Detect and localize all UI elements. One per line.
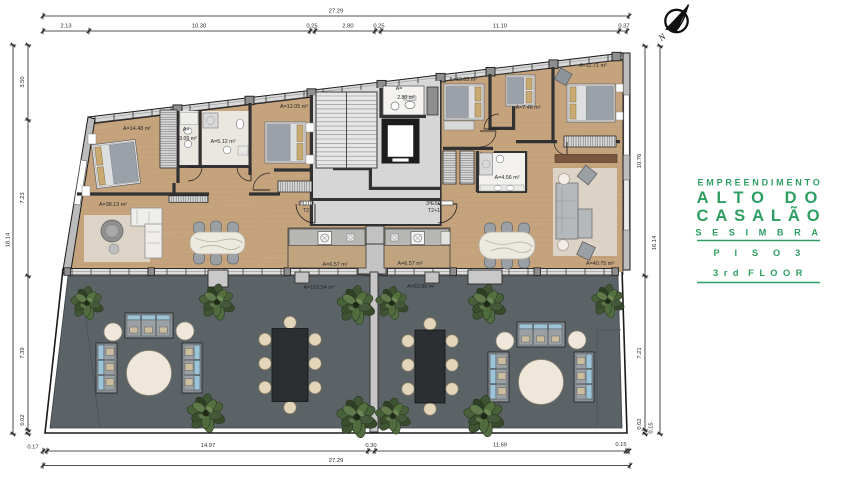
svg-text:A=82.86 m²: A=82.86 m²	[407, 284, 435, 290]
svg-text:A=4.56 m²: A=4.56 m²	[494, 175, 519, 181]
svg-text:A=40.75 m²: A=40.75 m²	[586, 261, 614, 267]
svg-text:ALTO DO: ALTO DO	[697, 189, 826, 207]
svg-text:27.29: 27.29	[329, 9, 344, 15]
svg-text:A=38.13 m²: A=38.13 m²	[99, 202, 127, 208]
svg-text:0.37: 0.37	[618, 24, 629, 30]
svg-text:7.39: 7.39	[20, 347, 26, 358]
svg-text:14.97: 14.97	[201, 443, 216, 449]
svg-text:2.80 m²: 2.80 m²	[397, 95, 415, 101]
svg-text:0.25: 0.25	[306, 24, 317, 30]
svg-text:SESIMBRA: SESIMBRA	[695, 228, 828, 238]
svg-text:0.15: 0.15	[649, 422, 655, 433]
svg-text:A=: A=	[396, 86, 403, 92]
svg-text:A=: A=	[183, 127, 190, 133]
svg-text:27.29: 27.29	[329, 458, 344, 464]
svg-text:T2+1: T2+1	[428, 208, 440, 214]
svg-text:A=14.48 m²: A=14.48 m²	[123, 126, 151, 132]
svg-text:EMPREENDIMENTO: EMPREENDIMENTO	[697, 178, 822, 188]
svg-text:16.14: 16.14	[652, 235, 658, 250]
svg-text:2.80: 2.80	[342, 24, 353, 30]
svg-text:0.15: 0.15	[615, 442, 626, 448]
svg-text:0.30: 0.30	[365, 443, 376, 449]
svg-text:A=13.65 m²: A=13.65 m²	[449, 77, 477, 83]
svg-text:P I S O 3: P I S O 3	[714, 248, 807, 258]
svg-text:0.17: 0.17	[27, 445, 38, 451]
svg-text:CASALÃO: CASALÃO	[697, 205, 827, 225]
svg-text:7.21: 7.21	[637, 347, 643, 358]
svg-text:A=12.05 m²: A=12.05 m²	[280, 104, 308, 110]
svg-text:10.30: 10.30	[192, 24, 207, 30]
svg-text:0.02: 0.02	[20, 414, 26, 425]
svg-text:A=6.57 m²: A=6.57 m²	[397, 261, 422, 267]
svg-text:A=5.12 m²: A=5.12 m²	[210, 139, 235, 145]
svg-text:A=6.57 m²: A=6.57 m²	[322, 262, 347, 268]
svg-text:3ºESQ: 3ºESQ	[426, 201, 442, 207]
svg-text:7.23: 7.23	[20, 192, 26, 203]
svg-text:A=103.54 m²: A=103.54 m²	[303, 285, 334, 291]
svg-text:0.02: 0.02	[637, 418, 643, 429]
svg-text:11.10: 11.10	[493, 24, 507, 30]
svg-text:2.13: 2.13	[60, 24, 71, 30]
svg-text:3ºDTO: 3ºDTO	[298, 201, 314, 207]
svg-text:A=11.71 m²: A=11.71 m²	[579, 63, 607, 69]
svg-text:18.14: 18.14	[6, 232, 12, 247]
svg-text:0.25: 0.25	[373, 24, 384, 30]
svg-text:3.50: 3.50	[20, 76, 26, 87]
svg-text:11.69: 11.69	[493, 443, 507, 449]
svg-text:T2: T2	[303, 208, 309, 214]
svg-text:3 r d F L O O R: 3 r d F L O O R	[713, 268, 804, 278]
svg-text:A=7.46 m²: A=7.46 m²	[515, 105, 540, 111]
svg-text:10.76: 10.76	[637, 154, 643, 169]
svg-text:3.09 m²: 3.09 m²	[179, 136, 197, 142]
